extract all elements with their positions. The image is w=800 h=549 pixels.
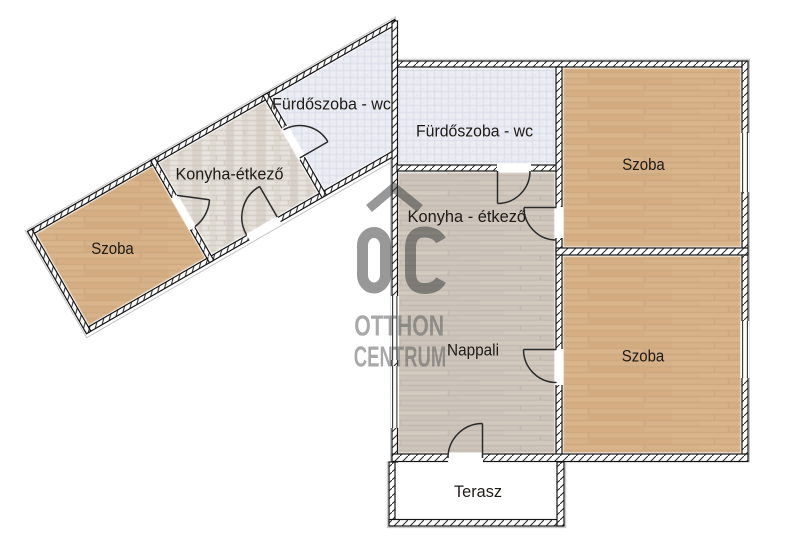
svg-text:Fürdőszoba - wc: Fürdőszoba - wc (416, 122, 533, 141)
svg-text:Szoba: Szoba (91, 239, 134, 258)
svg-text:Konyha-étkező: Konyha-étkező (176, 165, 284, 184)
svg-text:Nappali: Nappali (447, 341, 499, 360)
svg-text:Konyha - étkező: Konyha - étkező (408, 207, 527, 226)
svg-text:Terasz: Terasz (454, 482, 502, 501)
svg-text:Szoba: Szoba (622, 347, 665, 366)
svg-text:CENTRUM: CENTRUM (354, 341, 447, 373)
svg-text:OTTHON: OTTHON (354, 311, 444, 343)
svg-text:Fürdőszoba - wc: Fürdőszoba - wc (272, 95, 391, 114)
svg-text:Szoba: Szoba (622, 155, 665, 174)
